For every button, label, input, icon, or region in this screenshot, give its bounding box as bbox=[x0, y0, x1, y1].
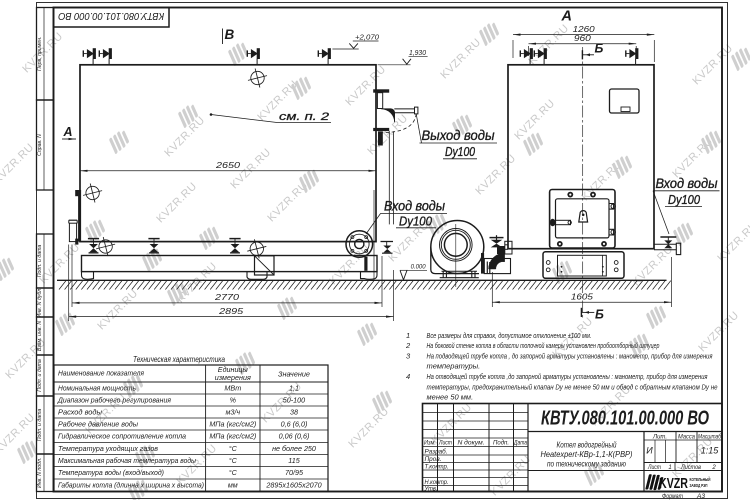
svg-text:Габариты котла (длинна х ширин: Габариты котла (длинна х ширина х высота… bbox=[58, 481, 204, 490]
svg-text:38: 38 bbox=[290, 408, 298, 417]
svg-text:Подп. и дата: Подп. и дата bbox=[37, 245, 43, 278]
svg-text:см. п. 2: см. п. 2 bbox=[279, 111, 329, 123]
svg-text:KVZR.RU: KVZR.RU bbox=[343, 63, 388, 108]
svg-text:А3: А3 bbox=[696, 493, 705, 500]
svg-text:Все размеры для справок, допус: Все размеры для справок, допустимое откл… bbox=[427, 331, 592, 340]
svg-text:На боковой стенке котла в обла: На боковой стенке котла в области топочн… bbox=[427, 341, 660, 350]
svg-text:50-100: 50-100 bbox=[283, 396, 305, 405]
svg-text:Номинальная мощность: Номинальная мощность bbox=[58, 384, 136, 393]
svg-text:МВт: МВт bbox=[224, 384, 241, 393]
svg-text:Масштаб: Масштаб bbox=[698, 435, 722, 441]
svg-text:115: 115 bbox=[288, 456, 300, 465]
svg-text:Справ. N: Справ. N bbox=[37, 134, 43, 156]
svg-text:Выход воды: Выход воды bbox=[422, 128, 495, 143]
svg-text:А: А bbox=[63, 125, 73, 139]
svg-text:Диапазон рабочего регулировани: Диапазон рабочего регулирования bbox=[57, 396, 171, 405]
svg-text:KVZR.RU: KVZR.RU bbox=[670, 435, 715, 480]
svg-text:Расход воды: Расход воды bbox=[58, 408, 103, 417]
svg-text:1: 1 bbox=[668, 465, 671, 471]
svg-text:2: 2 bbox=[405, 341, 411, 350]
svg-text:температуры.: температуры. bbox=[427, 362, 481, 371]
svg-text:KVZR.RU: KVZR.RU bbox=[473, 152, 518, 197]
svg-text:Dy100: Dy100 bbox=[668, 192, 701, 207]
svg-text:Подп. и дата: Подп. и дата bbox=[37, 409, 43, 442]
svg-text:МПа (кгс/см2): МПа (кгс/см2) bbox=[209, 432, 256, 441]
svg-text:KVZR.RU: KVZR.RU bbox=[715, 219, 750, 264]
svg-text:КВТУ.080.101.00.000 ВО: КВТУ.080.101.00.000 ВО bbox=[58, 10, 164, 22]
svg-text:KVZR.RU: KVZR.RU bbox=[365, 112, 410, 157]
svg-text:мм: мм bbox=[228, 481, 238, 490]
svg-text:Котел водогрейный: Котел водогрейный bbox=[557, 441, 617, 450]
svg-text:по техническому заданию: по техническому заданию bbox=[547, 460, 626, 469]
svg-text:KVZR.RU: KVZR.RU bbox=[154, 180, 199, 225]
svg-text:70/95: 70/95 bbox=[285, 468, 304, 477]
svg-text:2895х1605х2070: 2895х1605х2070 bbox=[265, 481, 321, 490]
svg-text:Лист: Лист bbox=[647, 465, 661, 471]
svg-text:Лит.: Лит. bbox=[652, 435, 667, 441]
svg-text:KVZR.RU: KVZR.RU bbox=[20, 30, 65, 75]
svg-text:1605: 1605 bbox=[571, 292, 594, 301]
svg-text:3: 3 bbox=[406, 351, 411, 360]
svg-text:2895: 2895 bbox=[218, 307, 244, 316]
svg-text:Перв. примен.: Перв. примен. bbox=[37, 37, 43, 71]
svg-text:На отводящей трубе котла ,до з: На отводящей трубе котла ,до запорной ар… bbox=[427, 372, 708, 381]
svg-text:KVZR.RU: KVZR.RU bbox=[346, 405, 391, 450]
svg-text:°С: °С bbox=[229, 468, 238, 477]
svg-text:°С: °С bbox=[229, 456, 238, 465]
svg-text:В: В bbox=[225, 27, 235, 42]
svg-text:Дата: Дата bbox=[513, 440, 527, 447]
svg-text:Разраб.: Разраб. bbox=[425, 448, 448, 455]
svg-text:KVZR: KVZR bbox=[659, 475, 688, 492]
svg-text:KVZR.RU: KVZR.RU bbox=[526, 22, 571, 67]
svg-text:N докум.: N докум. bbox=[458, 440, 485, 447]
svg-text:2650: 2650 bbox=[215, 161, 241, 170]
svg-text:Наименование показателя: Наименование показателя bbox=[58, 369, 144, 378]
svg-text:Температура воды (вход/выход): Температура воды (вход/выход) bbox=[58, 468, 164, 477]
svg-text:м3/ч: м3/ч bbox=[225, 408, 240, 417]
svg-text:KVZR.RU: KVZR.RU bbox=[438, 36, 483, 81]
svg-text:1260: 1260 bbox=[573, 25, 596, 34]
svg-text:Гидравлическое сопротивление к: Гидравлическое сопротивление котла bbox=[58, 432, 186, 441]
svg-text:4: 4 bbox=[406, 372, 410, 381]
svg-text:А: А bbox=[561, 9, 572, 25]
svg-text:Формат: Формат bbox=[662, 493, 683, 500]
svg-text:И: И bbox=[646, 446, 653, 456]
svg-text:1: 1 bbox=[406, 331, 410, 340]
svg-text:Температура уходящих газов: Температура уходящих газов bbox=[58, 444, 158, 453]
svg-text:МПа (кгс/см2): МПа (кгс/см2) bbox=[209, 420, 256, 429]
svg-text:+2,070: +2,070 bbox=[355, 35, 379, 42]
svg-text:Инв. N подл.: Инв. N подл. bbox=[37, 458, 43, 488]
svg-text:Лист: Лист bbox=[438, 440, 452, 447]
svg-text:КВТУ.080.101.00.000 ВО: КВТУ.080.101.00.000 ВО bbox=[541, 408, 709, 430]
svg-text:Б: Б bbox=[595, 308, 604, 322]
svg-text:0,6 (6,0): 0,6 (6,0) bbox=[281, 420, 308, 429]
svg-text:Вход воды: Вход воды bbox=[384, 199, 445, 214]
svg-text:2770: 2770 bbox=[214, 293, 240, 302]
svg-text:ЗАВОД РЭП: ЗАВОД РЭП bbox=[690, 483, 708, 488]
svg-text:KVZR.RU: KVZR.RU bbox=[0, 141, 36, 186]
svg-text:Т.контр.: Т.контр. bbox=[425, 463, 449, 470]
svg-text:2: 2 bbox=[711, 465, 716, 471]
svg-text:Масса: Масса bbox=[678, 435, 696, 441]
svg-text:KVZR.RU: KVZR.RU bbox=[162, 114, 207, 159]
svg-text:Значение: Значение bbox=[278, 370, 310, 379]
svg-text:Утв.: Утв. bbox=[424, 486, 438, 493]
svg-text:Инв. N дубл.: Инв. N дубл. bbox=[37, 287, 43, 317]
svg-text:0,06 (0,6): 0,06 (0,6) bbox=[279, 432, 310, 441]
svg-text:менее 50 мм.: менее 50 мм. bbox=[427, 393, 474, 402]
svg-text:На подводящей трубе котла ,: На подводящей трубе котла , до запорной … bbox=[427, 351, 713, 360]
svg-text:%: % bbox=[230, 396, 237, 405]
svg-text:Heatexpert-КВр-1,1-К(РВР): Heatexpert-КВр-1,1-К(РВР) bbox=[541, 450, 633, 459]
svg-text:Взам. инв. N: Взам. инв. N bbox=[37, 321, 43, 351]
svg-text:Изм.: Изм. bbox=[424, 440, 436, 447]
svg-text:960: 960 bbox=[574, 34, 592, 43]
svg-text:Подп.: Подп. bbox=[493, 440, 509, 447]
svg-text:0.000: 0.000 bbox=[411, 264, 426, 271]
svg-text:Вход воды: Вход воды bbox=[656, 176, 718, 191]
svg-text:Техническая характеристика: Техническая характеристика bbox=[133, 355, 225, 364]
svg-text:KVZR.RU: KVZR.RU bbox=[95, 287, 140, 332]
svg-text:КОТЕЛЬНЫЙ: КОТЕЛЬНЫЙ bbox=[690, 475, 711, 482]
svg-text:1,1: 1,1 bbox=[289, 384, 299, 393]
svg-text:KVZR.RU: KVZR.RU bbox=[696, 309, 741, 354]
svg-text:Dy100: Dy100 bbox=[399, 214, 433, 229]
svg-text:KVZR.RU: KVZR.RU bbox=[690, 42, 735, 87]
svg-text:Подп. и дата: Подп. и дата bbox=[37, 359, 43, 392]
svg-text:температуры, предохранительный: температуры, предохранительный клапан Dу… bbox=[427, 382, 718, 391]
svg-text:Рабочее давление воды: Рабочее давление воды bbox=[58, 420, 139, 429]
svg-text:KVZR.RU: KVZR.RU bbox=[512, 97, 557, 142]
svg-text:Б: Б bbox=[595, 41, 604, 55]
svg-text:Максимальная рабочая температу: Максимальная рабочая температура воды bbox=[58, 456, 197, 465]
svg-text:1:15: 1:15 bbox=[701, 446, 720, 456]
svg-text:измерения: измерения bbox=[215, 373, 251, 382]
svg-text:Пров.: Пров. bbox=[425, 456, 442, 463]
svg-text:Листов: Листов bbox=[680, 465, 701, 471]
svg-text:Dy100: Dy100 bbox=[445, 144, 476, 159]
svg-text:не более 250: не более 250 bbox=[272, 444, 316, 453]
svg-text:°С: °С bbox=[229, 444, 238, 453]
